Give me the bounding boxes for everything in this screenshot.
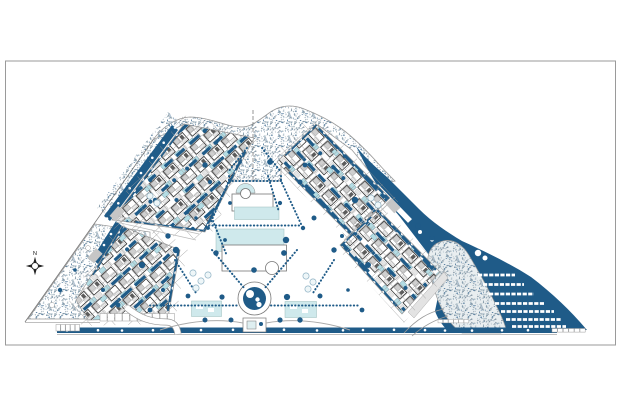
svg-text:N: N <box>33 251 37 257</box>
